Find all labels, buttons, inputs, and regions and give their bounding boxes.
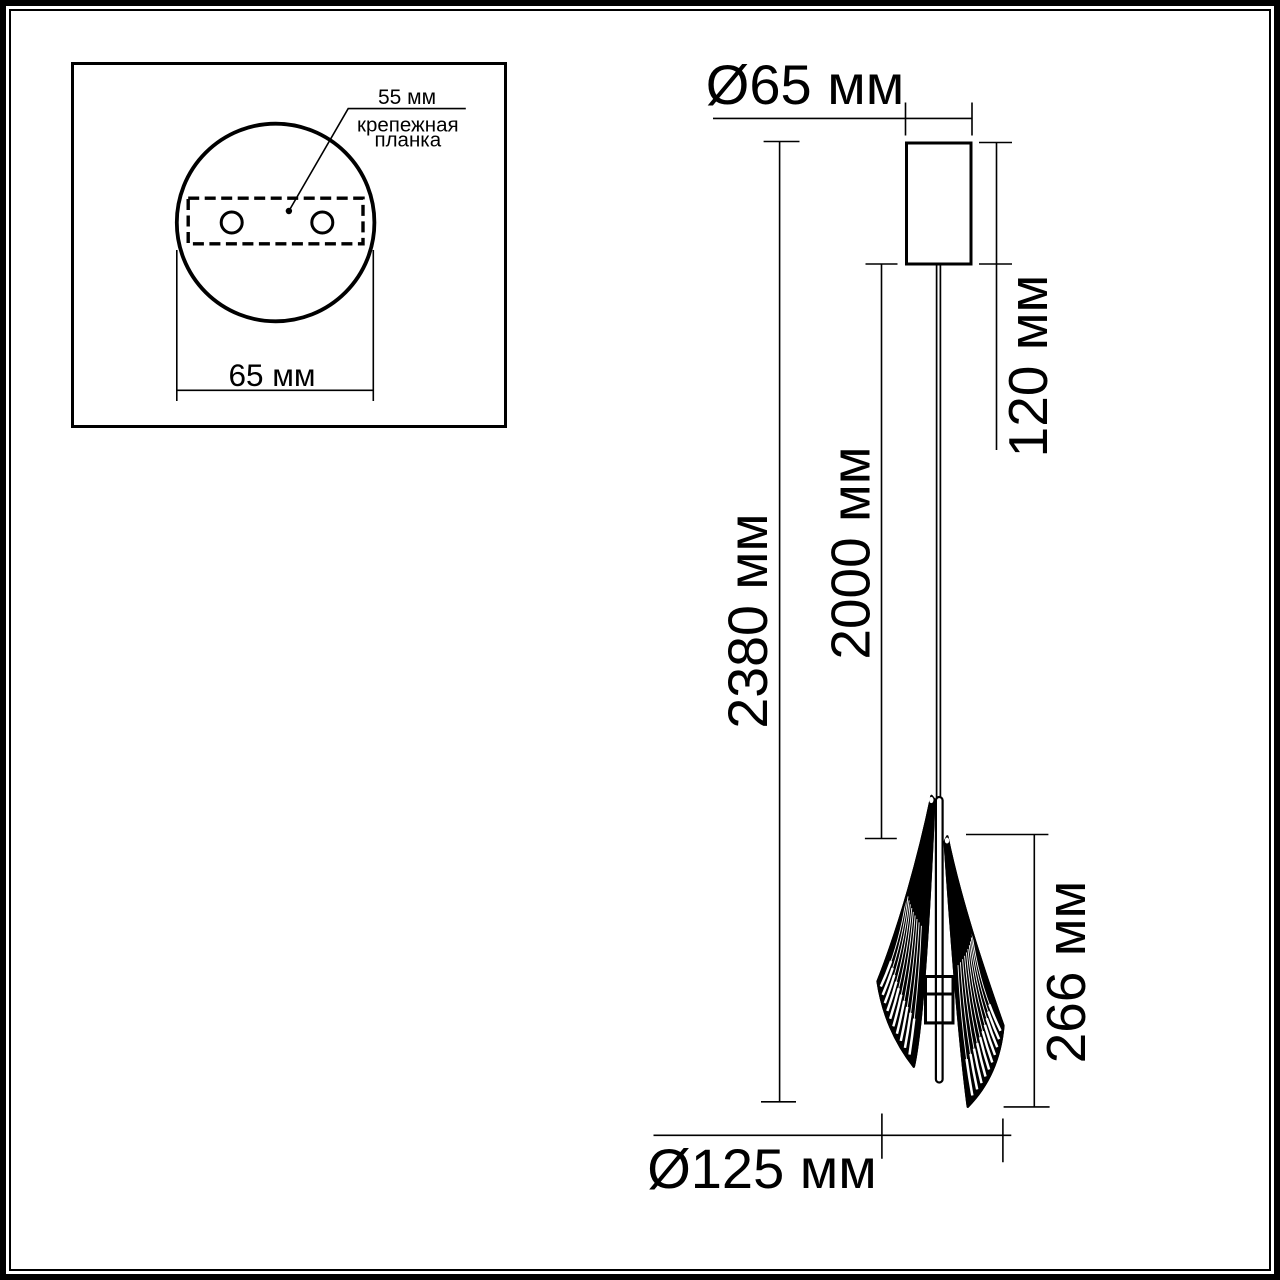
svg-text:2000 мм: 2000 мм <box>820 446 882 659</box>
svg-text:65 мм: 65 мм <box>228 357 315 393</box>
svg-text:Ø125 мм: Ø125 мм <box>647 1137 877 1200</box>
svg-text:Ø65 мм: Ø65 мм <box>706 53 904 116</box>
svg-text:120 мм: 120 мм <box>997 275 1059 458</box>
svg-text:266 мм: 266 мм <box>1035 881 1097 1064</box>
svg-text:планка: планка <box>374 129 441 152</box>
svg-text:2380 мм: 2380 мм <box>717 513 779 728</box>
svg-text:55 мм: 55 мм <box>378 86 436 109</box>
